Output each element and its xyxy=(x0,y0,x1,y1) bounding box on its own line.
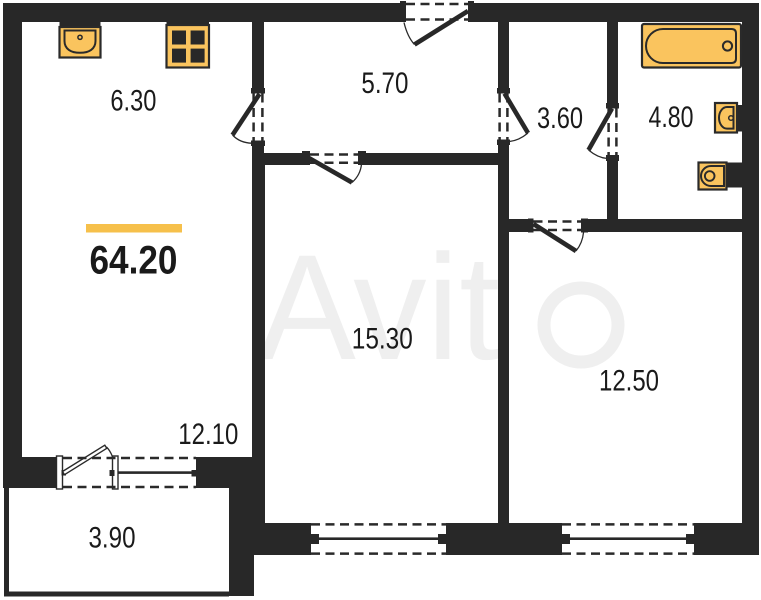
svg-text:6.30: 6.30 xyxy=(110,85,156,118)
svg-text:12.10: 12.10 xyxy=(178,418,238,451)
svg-text:12.50: 12.50 xyxy=(599,365,659,398)
svg-text:4.80: 4.80 xyxy=(649,101,694,134)
svg-text:3.90: 3.90 xyxy=(89,522,136,555)
svg-text:64.20: 64.20 xyxy=(90,239,178,283)
svg-text:5.70: 5.70 xyxy=(361,67,408,100)
svg-text:15.30: 15.30 xyxy=(352,323,413,356)
svg-text:3.60: 3.60 xyxy=(537,102,583,135)
svg-text:Avit: Avit xyxy=(258,223,500,391)
